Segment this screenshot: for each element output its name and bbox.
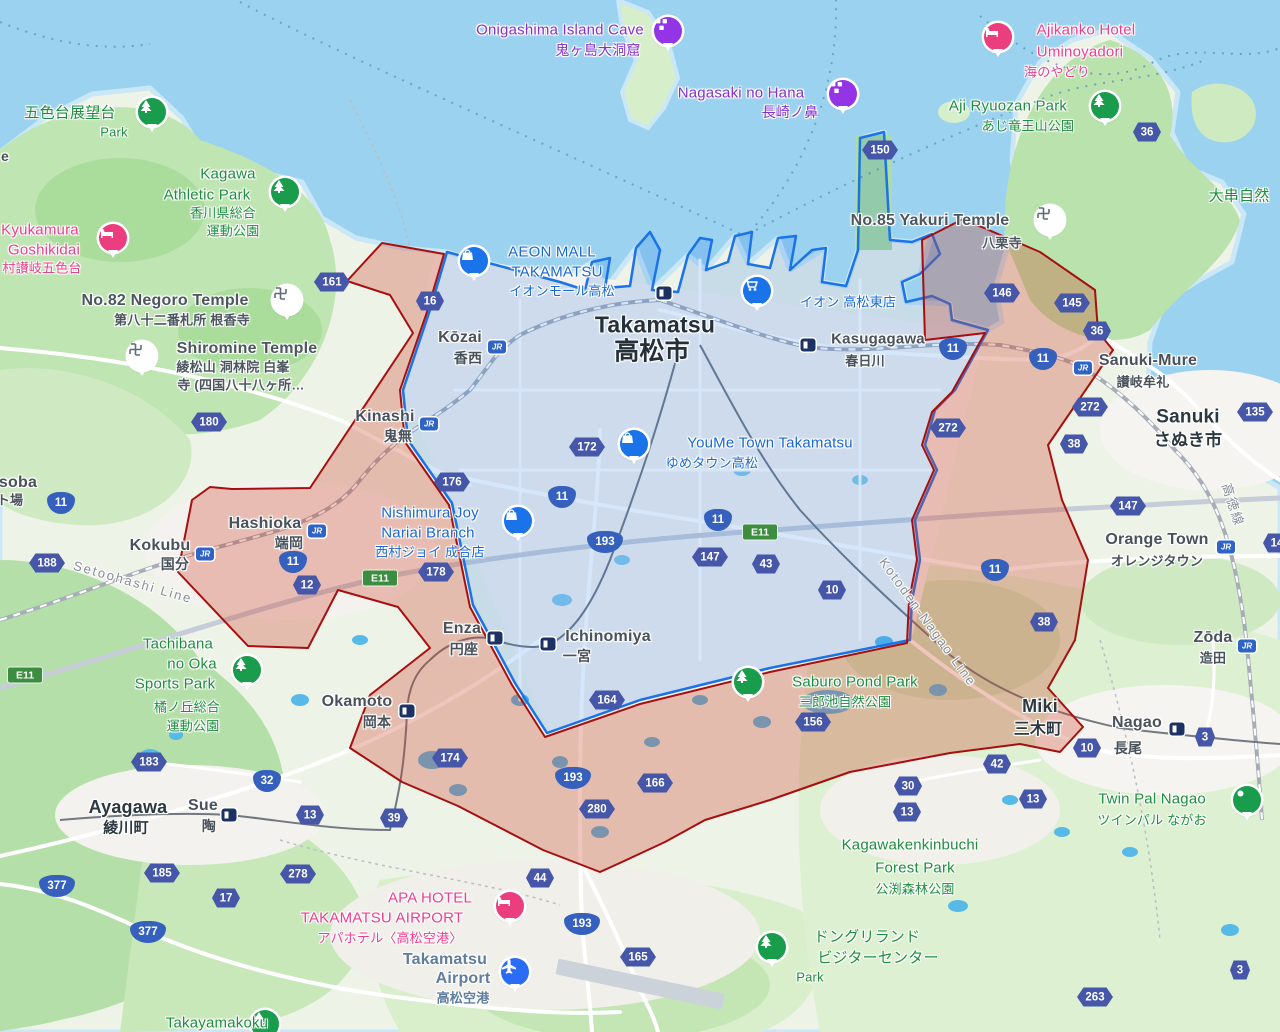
- route-shield: 38: [1060, 435, 1088, 454]
- temple-icon[interactable]: [273, 286, 301, 320]
- map-label[interactable]: イオン 高松東店: [800, 296, 896, 309]
- map-label[interactable]: Kotoden-Nagao Line: [877, 555, 979, 688]
- map-label[interactable]: Tachibana: [143, 637, 213, 652]
- route-shield: 13: [296, 806, 324, 825]
- map-label[interactable]: Hashioka: [229, 516, 302, 532]
- route-shield: 14: [1263, 534, 1280, 553]
- map-label[interactable]: Kokubu: [130, 538, 191, 554]
- park-icon[interactable]: [138, 98, 166, 132]
- map-label[interactable]: Kagawa: [200, 167, 255, 182]
- route-shield: 17: [212, 889, 240, 908]
- route-shield: 10: [1073, 739, 1101, 758]
- route-shield: 156: [795, 713, 831, 732]
- route-shield: 11: [279, 551, 307, 573]
- manji-glyph: [273, 286, 301, 314]
- tram-station-icon[interactable]: [1170, 723, 1185, 736]
- map-label[interactable]: TAKAMATSU AIRPORT: [301, 911, 464, 926]
- map-label[interactable]: 五色台展望台: [24, 106, 115, 121]
- pin-tail: [513, 533, 523, 541]
- route-shield: 150: [862, 141, 898, 160]
- map-label[interactable]: ト場: [0, 494, 23, 507]
- route-shield: E11: [362, 570, 398, 587]
- route-shield: 11: [939, 338, 967, 360]
- squares-glyph: [654, 17, 682, 45]
- tree-glyph: [1091, 92, 1119, 120]
- map-label[interactable]: no Oka: [167, 657, 217, 672]
- tree-glyph: [138, 98, 166, 126]
- bag-glyph: [504, 507, 532, 535]
- tram-station-icon[interactable]: [801, 339, 816, 352]
- jr-station-icon[interactable]: JR: [1074, 362, 1092, 375]
- map-label[interactable]: Forest Park: [875, 861, 955, 876]
- bag-glyph: [460, 247, 488, 275]
- map-label[interactable]: 長尾: [1114, 741, 1142, 755]
- route-shield: 13: [1019, 790, 1047, 809]
- route-shield: 12: [293, 576, 321, 595]
- route-shield: E11: [7, 667, 43, 684]
- map-label[interactable]: Nishimura Joy: [381, 506, 479, 521]
- plane-glyph: [501, 958, 529, 986]
- map-label[interactable]: 公渕森林公園: [875, 883, 954, 896]
- map-label[interactable]: 円座: [450, 642, 478, 656]
- route-shield: 11: [548, 486, 576, 508]
- map-label[interactable]: Okamoto: [322, 694, 393, 710]
- pin-tail: [752, 303, 762, 311]
- route-shield: 280: [579, 800, 615, 819]
- route-shield: 135: [1237, 403, 1273, 422]
- pin-tail: [767, 959, 777, 967]
- map-label[interactable]: Kinashi: [355, 409, 414, 425]
- map-label[interactable]: 高徳線: [1220, 482, 1246, 529]
- map-label[interactable]: Orange Town: [1105, 532, 1208, 548]
- route-shield: 161: [314, 273, 350, 292]
- map-label[interactable]: 岡本: [363, 715, 391, 729]
- map-label[interactable]: 大串自然: [1209, 189, 1270, 204]
- map-label[interactable]: Nagao: [1112, 715, 1162, 731]
- jr-station-icon[interactable]: JR: [1238, 640, 1256, 653]
- route-shield: 36: [1083, 322, 1111, 341]
- map-label[interactable]: soba: [0, 475, 37, 491]
- jr-station-icon[interactable]: JR: [1217, 541, 1235, 554]
- map-label[interactable]: Takamatsu: [595, 314, 715, 337]
- map-label[interactable]: 村讃岐五色台: [2, 262, 81, 275]
- map-label[interactable]: Kasugagawa: [831, 332, 925, 347]
- route-shield: 36: [1133, 123, 1161, 142]
- map-label[interactable]: Nagasaki no Hana: [678, 86, 805, 101]
- pin-tail: [743, 694, 753, 702]
- route-shield: 147: [692, 548, 728, 567]
- map-label[interactable]: 陶: [202, 819, 216, 833]
- map-label[interactable]: 鬼無: [384, 429, 412, 443]
- route-shield: 3: [1230, 961, 1250, 980]
- pin-tail: [242, 682, 252, 690]
- route-shield: 10: [818, 581, 846, 600]
- map-label[interactable]: Saburo Pond Park: [792, 675, 918, 690]
- map-canvas: 1611618018811E111112E111761781721931111E…: [0, 0, 1280, 1032]
- route-shield: 30: [894, 777, 922, 796]
- pin-tail: [1100, 118, 1110, 126]
- pin-tail: [629, 456, 639, 464]
- map-label[interactable]: Zōda: [1193, 630, 1232, 646]
- map-label[interactable]: TAKAMATSU: [511, 265, 602, 280]
- route-shield: 146: [984, 284, 1020, 303]
- map-label[interactable]: No.82 Negoro Temple: [81, 293, 248, 309]
- map-label[interactable]: 運動公園: [167, 720, 220, 733]
- map-label[interactable]: 三木町: [1014, 722, 1063, 738]
- jr-station-icon[interactable]: JR: [196, 548, 214, 561]
- temple-icon[interactable]: [1036, 206, 1064, 240]
- map-label[interactable]: 端岡: [275, 536, 303, 550]
- pin-tail: [663, 43, 673, 51]
- route-shield: 13: [893, 803, 921, 822]
- map-label[interactable]: Miki: [1022, 697, 1058, 715]
- map-label[interactable]: 八栗寺: [982, 237, 1022, 250]
- map-label[interactable]: 讃岐牟礼: [1117, 376, 1170, 389]
- route-shield: 263: [1077, 988, 1113, 1007]
- map-label[interactable]: Nariai Branch: [381, 526, 474, 541]
- route-shield: 193: [555, 767, 591, 789]
- shopping-bag-icon[interactable]: [504, 507, 532, 541]
- shopping-cart-icon[interactable]: [743, 277, 771, 311]
- map-label[interactable]: AEON MALL: [508, 245, 596, 260]
- route-shield: 176: [434, 473, 470, 492]
- map-label[interactable]: 造田: [1200, 652, 1226, 665]
- route-shield: 11: [1029, 348, 1057, 370]
- route-shield: 39: [380, 809, 408, 828]
- map-label[interactable]: イオンモール高松: [509, 285, 615, 298]
- map-label[interactable]: No.85 Yakuri Temple: [851, 213, 1010, 229]
- tram-station-icon[interactable]: [400, 705, 415, 718]
- map-label[interactable]: Athletic Park: [164, 188, 251, 203]
- map-label[interactable]: 西村ジョイ 成合店: [375, 546, 484, 559]
- pin-tail: [505, 918, 515, 926]
- bed-glyph: [984, 23, 1012, 51]
- map-label[interactable]: ツインパル ながお: [1097, 814, 1206, 827]
- map-label[interactable]: Sanuki: [1156, 408, 1220, 427]
- pin-tail: [147, 124, 157, 132]
- cart-glyph: [743, 277, 771, 305]
- route-shield: 11: [47, 492, 75, 514]
- bed-glyph: [99, 224, 127, 252]
- tree-glyph: [271, 178, 299, 206]
- route-shield: E11: [742, 524, 778, 541]
- pin-tail: [137, 368, 147, 376]
- route-shield: 3: [1195, 728, 1215, 747]
- map-label[interactable]: 高松市: [614, 340, 690, 365]
- map-label[interactable]: Sue: [188, 798, 218, 814]
- map-overlay: 1611618018811E111112E111761781721931111E…: [0, 0, 1280, 1032]
- route-shield: 11: [981, 559, 1009, 581]
- park-icon[interactable]: [758, 933, 786, 967]
- route-shield: 183: [131, 753, 167, 772]
- map-label[interactable]: 綾川町: [103, 821, 149, 836]
- tram-station-icon[interactable]: [222, 809, 237, 822]
- map-label[interactable]: Airport: [436, 971, 491, 987]
- tree-glyph: [734, 668, 762, 696]
- map-label[interactable]: 香西: [454, 351, 482, 365]
- shopping-bag-icon[interactable]: [620, 430, 648, 464]
- jr-station-icon[interactable]: JR: [488, 341, 506, 354]
- map-label[interactable]: YouMe Town Takamatsu: [687, 436, 853, 451]
- route-shield: 272: [1072, 398, 1108, 417]
- route-shield: 180: [191, 413, 227, 432]
- map-label[interactable]: 第八十二番札所 根香寺: [114, 314, 250, 327]
- map-label[interactable]: Aji Ryuozan Park: [949, 99, 1067, 114]
- map-label[interactable]: Sports Park: [135, 677, 216, 692]
- map-label[interactable]: さぬき市: [1154, 432, 1222, 449]
- map-label[interactable]: アパホテル〈高松空港〉: [318, 932, 463, 945]
- map-label[interactable]: Takamatsu: [403, 952, 487, 968]
- map-label[interactable]: Kōzai: [438, 330, 482, 346]
- pin-tail: [838, 106, 848, 114]
- map-label[interactable]: Sanuki-Mure: [1099, 353, 1197, 369]
- manji-glyph: [128, 342, 156, 370]
- park-icon[interactable]: [734, 668, 762, 702]
- park-icon[interactable]: [233, 656, 261, 690]
- tree-glyph: [758, 933, 786, 961]
- map-label[interactable]: あじ竜王山公園: [982, 120, 1074, 133]
- route-shield: 32: [253, 770, 281, 792]
- route-shield: 165: [620, 948, 656, 967]
- hotel-icon[interactable]: [99, 224, 127, 258]
- pin-tail: [1045, 232, 1055, 240]
- route-shield: 145: [1054, 294, 1090, 313]
- hotel-icon[interactable]: [496, 892, 524, 926]
- route-shield: 166: [637, 774, 673, 793]
- attraction-icon[interactable]: [654, 17, 682, 51]
- route-shield: 16: [416, 292, 444, 311]
- temple-icon[interactable]: [128, 342, 156, 376]
- map-label[interactable]: 春日川: [845, 355, 885, 368]
- route-shield: 44: [526, 869, 554, 888]
- map-label[interactable]: 香川県総合: [190, 207, 256, 220]
- pin-tail: [510, 984, 520, 992]
- pin-tail: [280, 204, 290, 212]
- attraction-icon[interactable]: [829, 80, 857, 114]
- pin-tail: [282, 312, 292, 320]
- tree-glyph: [233, 656, 261, 684]
- map-label[interactable]: Uminoyadori: [1037, 45, 1123, 60]
- map-label[interactable]: 国分: [161, 557, 189, 571]
- map-label[interactable]: Park: [100, 126, 128, 139]
- map-label[interactable]: Goshikidai: [8, 243, 80, 258]
- map-label[interactable]: 三郎池自然公園: [799, 696, 891, 709]
- route-shield: 377: [130, 921, 166, 943]
- squares-glyph: [829, 80, 857, 108]
- map-label[interactable]: Twin Pal Nagao: [1098, 792, 1206, 807]
- route-shield: 174: [432, 749, 468, 768]
- manji-glyph: [1036, 206, 1064, 234]
- pin-tail: [469, 273, 479, 281]
- map-label[interactable]: 運動公園: [207, 225, 260, 238]
- map-label[interactable]: ビジターセンター: [817, 951, 938, 966]
- bed-glyph: [496, 892, 524, 920]
- airport-icon[interactable]: [501, 958, 529, 992]
- jr-station-icon[interactable]: JR: [420, 418, 438, 431]
- route-shield: 377: [39, 875, 75, 897]
- jr-station-icon[interactable]: JR: [308, 525, 326, 538]
- bag-glyph: [620, 430, 648, 458]
- map-label[interactable]: Ayagawa: [89, 798, 168, 816]
- map-label[interactable]: Ichinomiya: [565, 629, 651, 645]
- route-shield: 164: [589, 691, 625, 710]
- leisure-icon[interactable]: [1233, 786, 1261, 820]
- route-shield: 172: [569, 438, 605, 457]
- map-label[interactable]: Shiromine Temple: [177, 341, 318, 357]
- route-shield: 147: [1110, 497, 1146, 516]
- route-shield: 188: [29, 554, 65, 573]
- map-label[interactable]: Takayamakoku: [166, 1016, 268, 1031]
- route-shield: 11: [704, 509, 732, 531]
- map-label[interactable]: Kagawakenkinbuchi: [842, 838, 979, 853]
- map-label[interactable]: 長崎ノ鼻: [762, 105, 819, 119]
- route-shield: 185: [144, 864, 180, 883]
- tram-station-icon[interactable]: [657, 287, 672, 300]
- map-label[interactable]: ゆめタウン高松: [666, 457, 758, 470]
- map-label[interactable]: 高松空港: [437, 992, 490, 1005]
- map-label[interactable]: Enza: [443, 621, 481, 637]
- map-label[interactable]: Ajikanko Hotel: [1037, 23, 1136, 38]
- map-label[interactable]: e: [1, 149, 9, 163]
- pin-tail: [993, 49, 1003, 57]
- map-label[interactable]: Onigashima Island Cave: [476, 23, 644, 38]
- route-shield: 42: [983, 755, 1011, 774]
- route-shield: 193: [564, 913, 600, 935]
- dot-glyph: [1233, 786, 1261, 814]
- map-label[interactable]: 鬼ヶ島大洞窟: [555, 43, 640, 57]
- route-shield: 178: [418, 563, 454, 582]
- map-label[interactable]: 寺 (四国八十八ヶ所…: [177, 379, 304, 392]
- map-label[interactable]: Park: [796, 971, 824, 984]
- map-label[interactable]: オレンジタウン: [1111, 555, 1203, 568]
- park-icon[interactable]: [1091, 92, 1119, 126]
- map-label[interactable]: 橘ノ丘総合: [154, 701, 220, 714]
- route-shield: 272: [930, 419, 966, 438]
- route-shield: 193: [587, 531, 623, 553]
- route-shield: 43: [752, 555, 780, 574]
- map-label[interactable]: 綾松山 洞林院 白峯: [176, 361, 289, 374]
- route-shield: 278: [280, 865, 316, 884]
- map-label[interactable]: Kyukamura: [1, 223, 79, 238]
- tram-station-icon[interactable]: [488, 632, 503, 645]
- tram-station-icon[interactable]: [541, 638, 556, 651]
- map-label[interactable]: ドングリランド: [814, 930, 920, 945]
- pin-tail: [1242, 812, 1252, 820]
- pin-tail: [108, 250, 118, 258]
- hotel-icon[interactable]: [984, 23, 1012, 57]
- park-icon[interactable]: [271, 178, 299, 212]
- map-label[interactable]: 一宮: [563, 649, 591, 663]
- map-label[interactable]: APA HOTEL: [388, 891, 472, 906]
- map-label[interactable]: 海のやどり: [1024, 66, 1090, 79]
- route-shield: 38: [1030, 613, 1058, 632]
- shopping-bag-icon[interactable]: [460, 247, 488, 281]
